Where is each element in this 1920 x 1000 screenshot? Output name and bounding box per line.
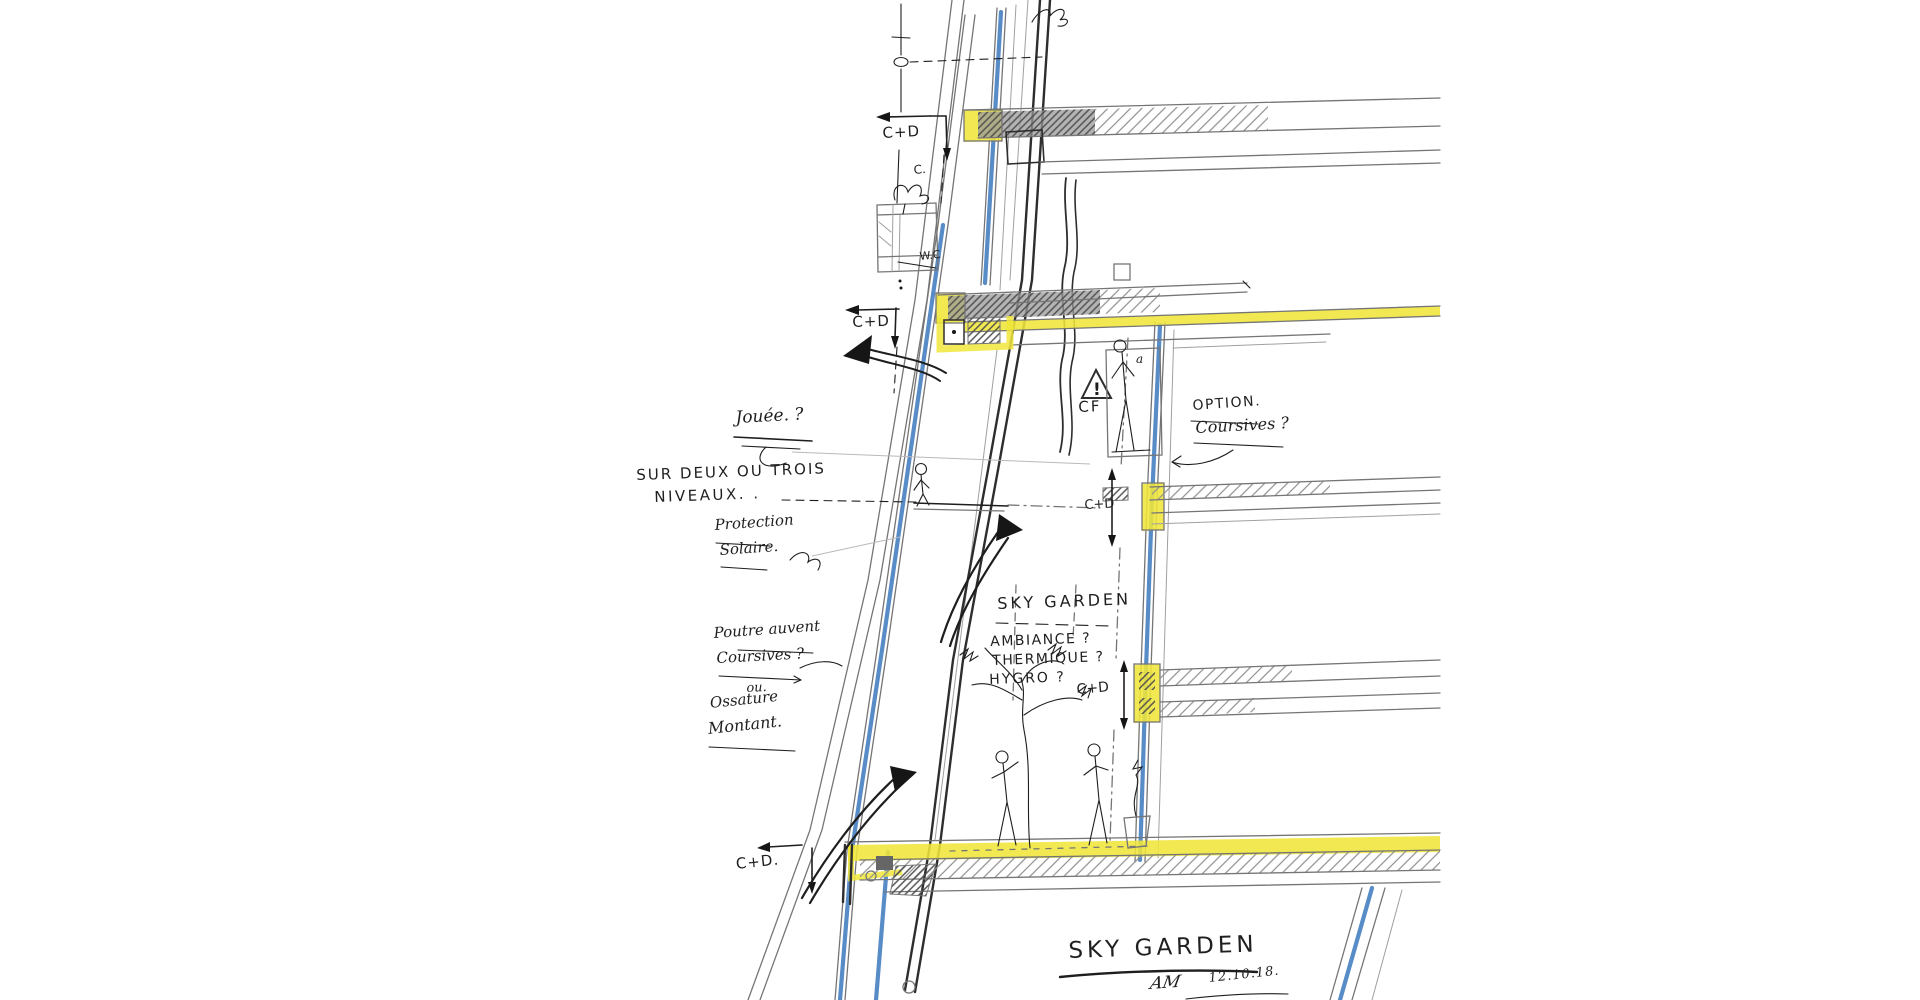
- figure-skygarden-1: [992, 751, 1018, 846]
- label-cf: CF: [1078, 397, 1102, 416]
- flow-arrowhead-upper: [843, 335, 872, 364]
- label-wc-note: W.C: [919, 248, 941, 263]
- label-cd-mid: C+D: [852, 312, 890, 331]
- label-c-note: C.: [913, 162, 926, 177]
- date-underline: [1186, 994, 1288, 999]
- author-monogram: AM: [1148, 972, 1182, 994]
- glass-line-bottom-right: [1340, 888, 1372, 1000]
- label-cd-top: C+D: [882, 122, 920, 142]
- slab-right-upper: [1103, 477, 1440, 531]
- flow-arrowhead-middle: [996, 514, 1023, 541]
- slab-top: [964, 98, 1440, 174]
- glass-line-right: [1140, 325, 1160, 860]
- label-cd-right-lower: C+D: [1076, 679, 1110, 698]
- label-niveaux: NIVEAUX. .: [654, 484, 761, 506]
- label-jouee: Jouée. ?: [735, 404, 804, 428]
- figure-skygarden-2: [1084, 744, 1108, 845]
- flow-arrows: [802, 335, 1023, 903]
- slab-second: [936, 281, 1440, 349]
- label-a-note: a: [1136, 352, 1143, 366]
- flow-arrowhead-lower: [890, 766, 917, 792]
- detail-box-wc: [877, 185, 938, 289]
- sketch-canvas: !: [0, 0, 1920, 1000]
- slab-right-lower: [1134, 660, 1440, 723]
- label-cd-right-upper: C+D: [1084, 496, 1115, 513]
- figure-mid-level: [914, 464, 929, 507]
- label-hygro: HYGRO ?: [989, 669, 1066, 688]
- sketch-drawing: !: [0, 0, 1920, 1000]
